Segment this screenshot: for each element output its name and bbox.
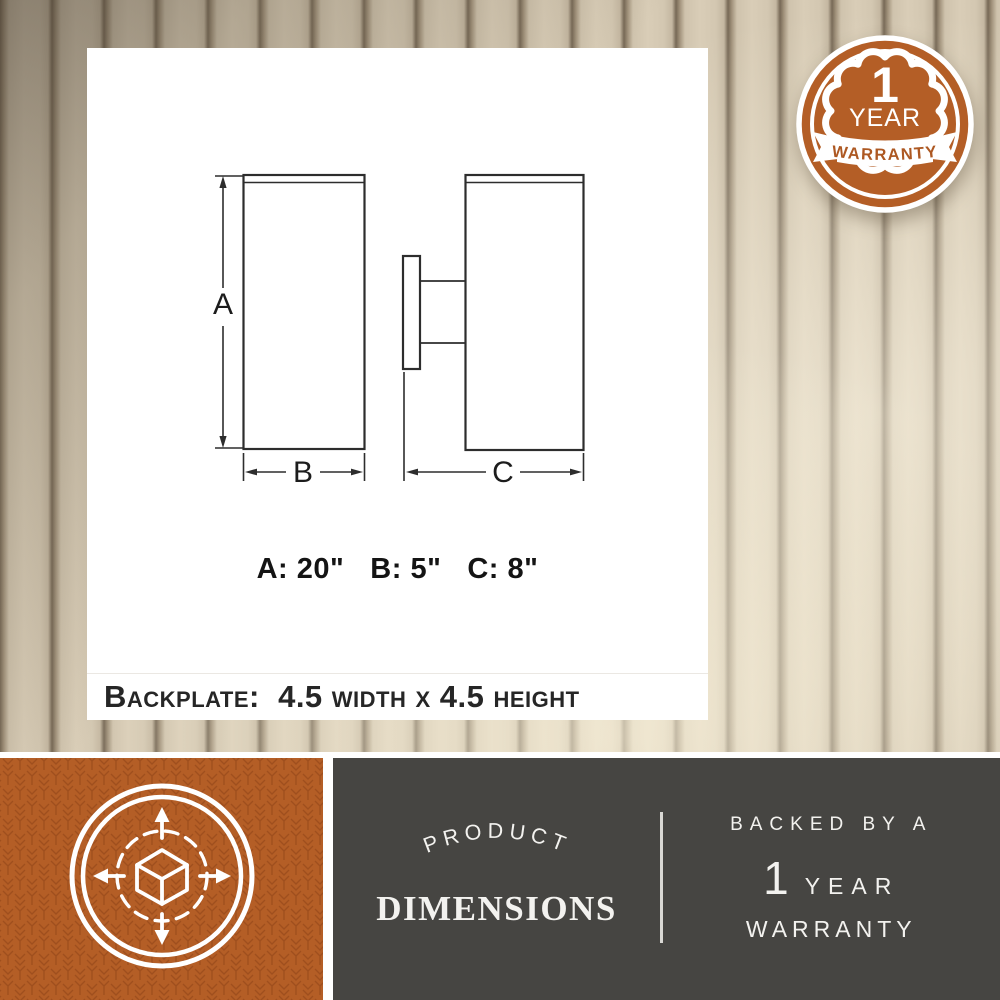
side-view-outline xyxy=(403,175,584,450)
warranty-badge: 1 YEAR WARRANTY xyxy=(794,33,976,215)
dim-label-a: A xyxy=(213,288,233,321)
dimensions-title: DIMENSIONS xyxy=(376,889,617,929)
1-year-warranty-seal-icon: 1 YEAR WARRANTY xyxy=(794,33,976,215)
backplate-info-bar: Backplate: 4.5 width x 4.5 height xyxy=(87,673,708,720)
badge-year-text: YEAR xyxy=(849,104,921,132)
bottom-banner: PRODUCT DIMENSIONS BACKED BY A 1 YEAR WA… xyxy=(0,758,1000,1000)
year-number: 1 xyxy=(763,857,789,899)
warranty-text-block: BACKED BY A 1 YEAR WARRANTY xyxy=(663,758,1000,1000)
dim-value-a: A: 20" xyxy=(257,553,345,586)
backed-by-text: BACKED BY A xyxy=(730,813,932,837)
arched-product-text: PRODUCT xyxy=(347,788,647,883)
dimension-arrowheads xyxy=(219,176,582,475)
warranty-word: WARRANTY xyxy=(746,915,917,943)
dim-value-c: C: 8" xyxy=(467,553,538,586)
product-arc-text: PRODUCT xyxy=(420,819,574,858)
dim-label-b: B xyxy=(293,456,313,489)
dimensions-icon-tile xyxy=(0,758,323,1000)
3d-cube-dimensions-icon xyxy=(0,758,323,1000)
dimension-values-line: A: 20" B: 5" C: 8" xyxy=(87,553,708,586)
backplate-dimensions-text: Backplate: 4.5 width x 4.5 height xyxy=(104,679,580,715)
product-dimensions-block: PRODUCT DIMENSIONS xyxy=(333,758,660,1000)
product-dimensions-graphic: A B C A: 20" B: 5" C: 8" Backplate: 4.5 … xyxy=(0,0,1000,1000)
front-view-outline xyxy=(244,175,365,449)
year-word: YEAR xyxy=(805,873,900,900)
dim-label-c: C xyxy=(492,456,514,489)
drawing-panel: A B C A: 20" B: 5" C: 8" Backplate: 4.5 … xyxy=(87,48,708,720)
svg-text:PRODUCT: PRODUCT xyxy=(420,819,574,858)
one-year-line: 1 YEAR xyxy=(763,857,899,899)
dim-value-b: B: 5" xyxy=(370,553,441,586)
bottom-text-section: PRODUCT DIMENSIONS BACKED BY A 1 YEAR WA… xyxy=(333,758,1000,1000)
technical-drawing: A B C xyxy=(87,48,708,553)
